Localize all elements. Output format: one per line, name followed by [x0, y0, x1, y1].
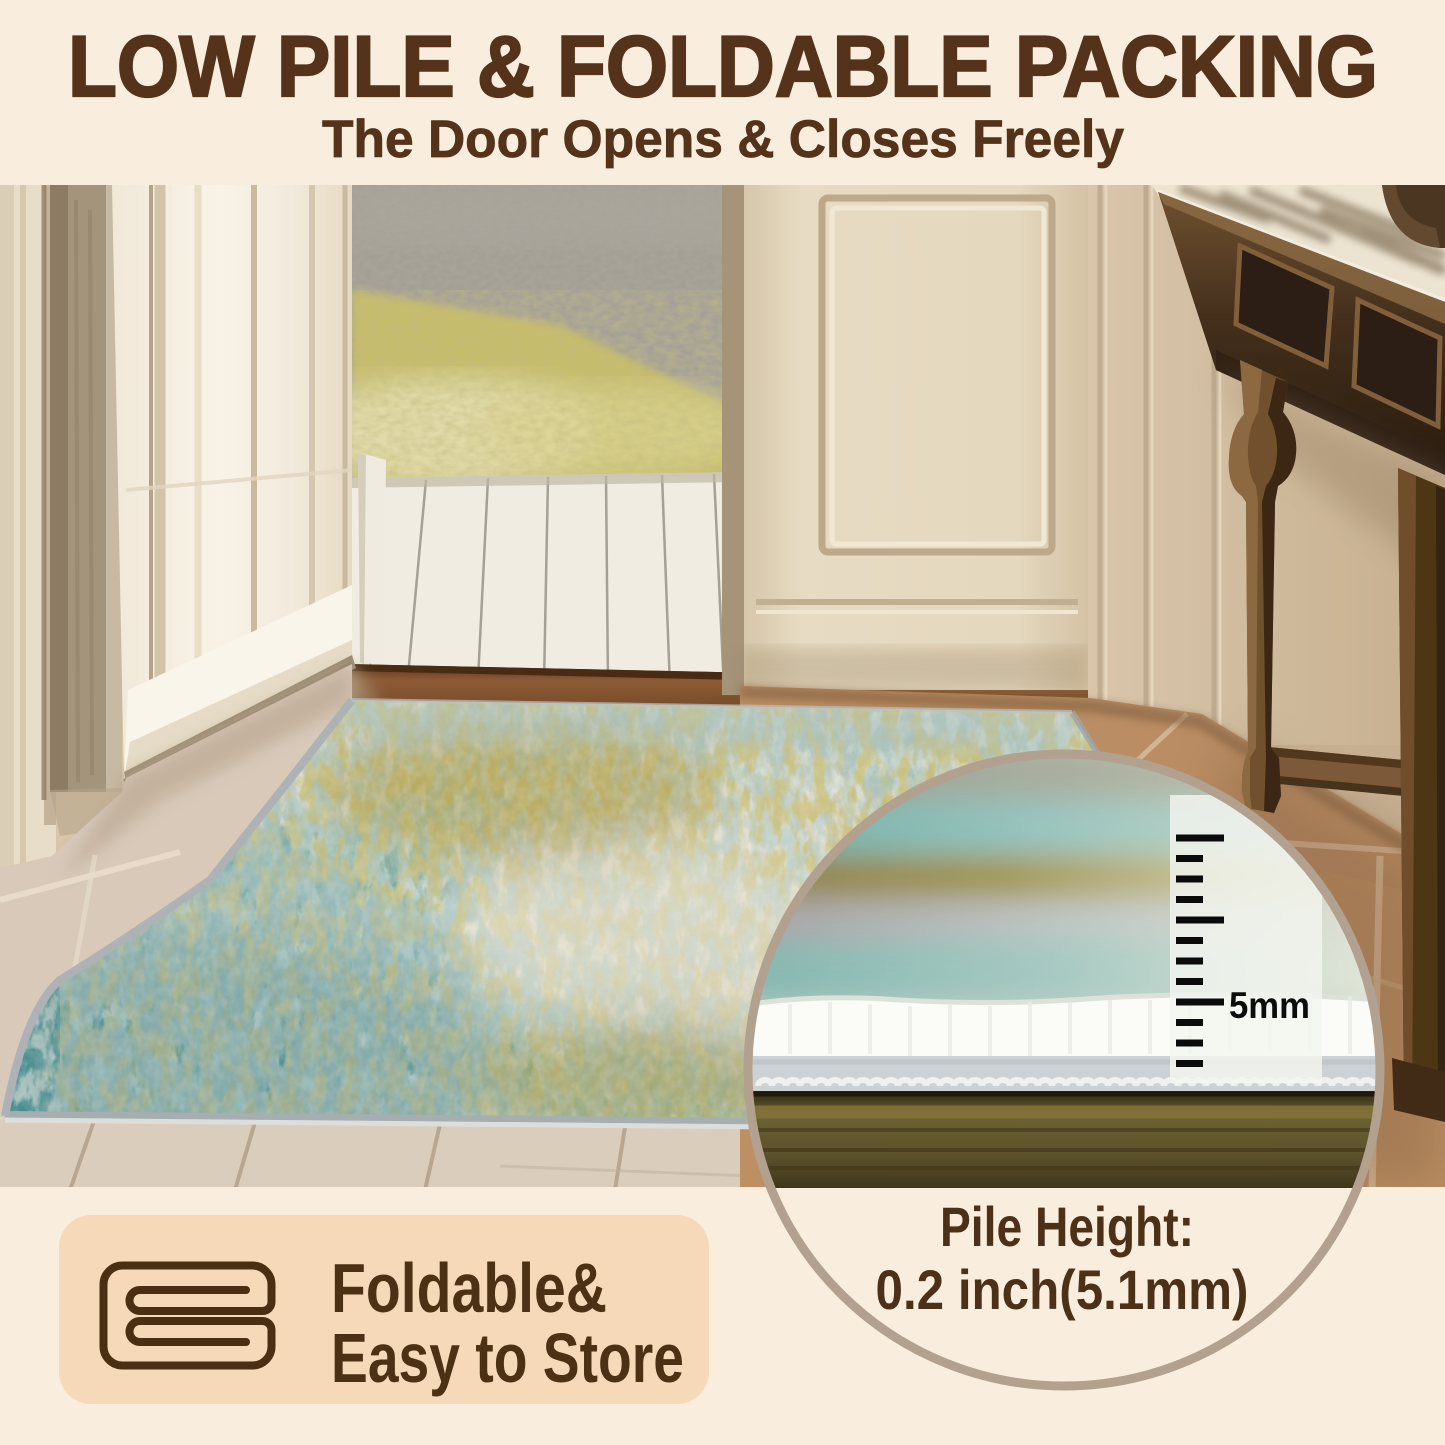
svg-text:The Door Opens & Closes Freely: The Door Opens & Closes Freely [322, 110, 1124, 169]
svg-text:Foldable&: Foldable& [331, 1249, 607, 1327]
svg-text:5mm: 5mm [1229, 985, 1310, 1026]
svg-text:0.2 inch(5.1mm): 0.2 inch(5.1mm) [876, 1258, 1249, 1321]
svg-text:LOW PILE & FOLDABLE PACKING: LOW PILE & FOLDABLE PACKING [68, 19, 1378, 115]
svg-text:Easy to Store: Easy to Store [331, 1319, 684, 1397]
svg-text:Pile Height:: Pile Height: [940, 1195, 1194, 1258]
